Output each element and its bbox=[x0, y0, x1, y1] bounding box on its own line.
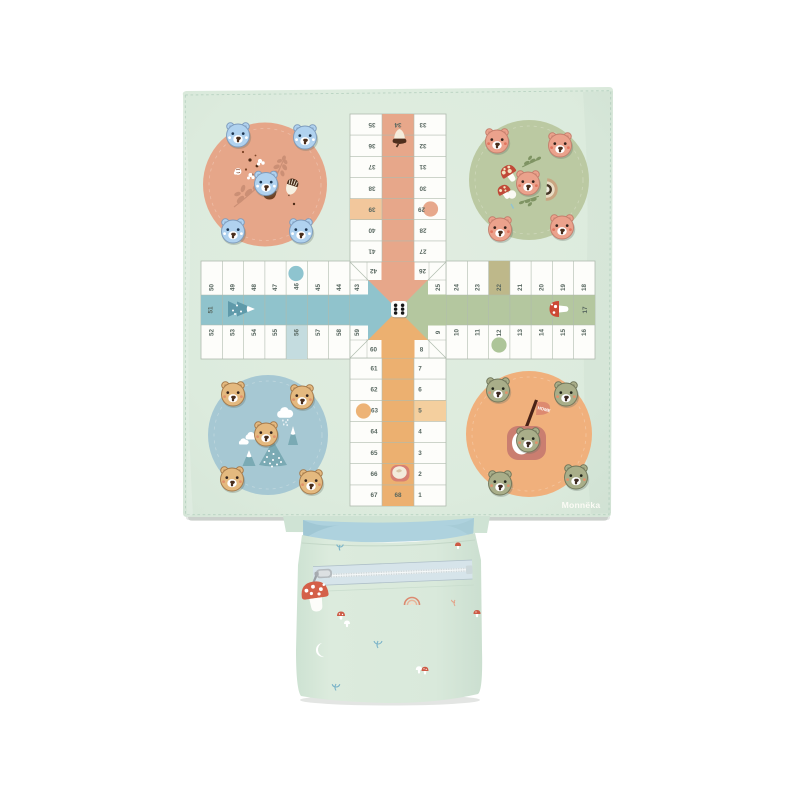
svg-text:52: 52 bbox=[208, 329, 215, 337]
svg-text:33: 33 bbox=[419, 121, 427, 128]
svg-text:15: 15 bbox=[560, 329, 567, 337]
svg-text:26: 26 bbox=[419, 267, 427, 274]
svg-text:56: 56 bbox=[293, 329, 300, 337]
svg-text:42: 42 bbox=[370, 267, 378, 274]
svg-text:36: 36 bbox=[368, 142, 376, 149]
svg-text:4: 4 bbox=[418, 429, 422, 436]
svg-text:55: 55 bbox=[272, 329, 279, 337]
svg-text:65: 65 bbox=[370, 450, 378, 457]
svg-text:Monnëka: Monnëka bbox=[562, 500, 601, 510]
svg-text:62: 62 bbox=[370, 386, 378, 393]
svg-text:66: 66 bbox=[370, 471, 378, 478]
svg-text:38: 38 bbox=[368, 184, 376, 191]
svg-text:22: 22 bbox=[496, 284, 503, 292]
svg-text:13: 13 bbox=[517, 329, 524, 337]
svg-text:61: 61 bbox=[370, 365, 378, 372]
svg-text:28: 28 bbox=[419, 227, 427, 234]
svg-text:2: 2 bbox=[418, 471, 422, 478]
svg-text:30: 30 bbox=[419, 184, 427, 191]
svg-text:60: 60 bbox=[370, 347, 378, 354]
svg-text:24: 24 bbox=[453, 284, 460, 292]
svg-text:23: 23 bbox=[475, 284, 482, 292]
svg-text:21: 21 bbox=[517, 284, 524, 292]
svg-text:58: 58 bbox=[336, 329, 343, 337]
svg-text:7: 7 bbox=[418, 365, 422, 372]
svg-text:34: 34 bbox=[394, 121, 402, 128]
svg-text:41: 41 bbox=[368, 248, 376, 255]
svg-text:44: 44 bbox=[336, 284, 343, 292]
svg-text:16: 16 bbox=[581, 329, 588, 337]
svg-text:53: 53 bbox=[230, 329, 237, 337]
svg-text:3: 3 bbox=[418, 450, 422, 457]
svg-text:14: 14 bbox=[538, 329, 545, 337]
svg-text:57: 57 bbox=[315, 329, 322, 337]
svg-text:5: 5 bbox=[418, 408, 422, 415]
svg-text:68: 68 bbox=[394, 492, 402, 499]
svg-text:40: 40 bbox=[368, 227, 376, 234]
svg-text:18: 18 bbox=[581, 284, 588, 292]
svg-text:43: 43 bbox=[354, 284, 361, 292]
svg-text:59: 59 bbox=[354, 329, 361, 337]
svg-text:12: 12 bbox=[496, 329, 503, 337]
svg-text:29: 29 bbox=[418, 205, 426, 212]
svg-text:35: 35 bbox=[368, 121, 376, 128]
svg-text:46: 46 bbox=[293, 283, 300, 291]
svg-text:39: 39 bbox=[368, 205, 376, 212]
svg-text:10: 10 bbox=[453, 329, 460, 337]
svg-text:25: 25 bbox=[435, 284, 442, 292]
svg-text:67: 67 bbox=[370, 492, 378, 499]
svg-text:37: 37 bbox=[368, 163, 376, 170]
svg-text:32: 32 bbox=[419, 142, 427, 149]
svg-text:63: 63 bbox=[371, 408, 379, 415]
svg-text:17: 17 bbox=[582, 306, 589, 314]
svg-text:31: 31 bbox=[419, 163, 427, 170]
svg-text:27: 27 bbox=[419, 248, 427, 255]
svg-text:6: 6 bbox=[418, 386, 422, 393]
svg-text:51: 51 bbox=[208, 306, 215, 314]
svg-text:45: 45 bbox=[315, 284, 322, 292]
svg-text:54: 54 bbox=[251, 329, 258, 337]
svg-text:1: 1 bbox=[418, 492, 422, 499]
svg-text:20: 20 bbox=[538, 284, 545, 292]
svg-text:50: 50 bbox=[208, 284, 215, 292]
svg-text:8: 8 bbox=[420, 347, 424, 354]
svg-text:9: 9 bbox=[435, 330, 442, 334]
svg-text:49: 49 bbox=[230, 284, 237, 292]
svg-text:19: 19 bbox=[560, 284, 567, 292]
svg-text:11: 11 bbox=[475, 329, 482, 336]
svg-text:64: 64 bbox=[370, 429, 378, 436]
svg-text:48: 48 bbox=[251, 284, 258, 292]
svg-text:47: 47 bbox=[272, 284, 279, 292]
